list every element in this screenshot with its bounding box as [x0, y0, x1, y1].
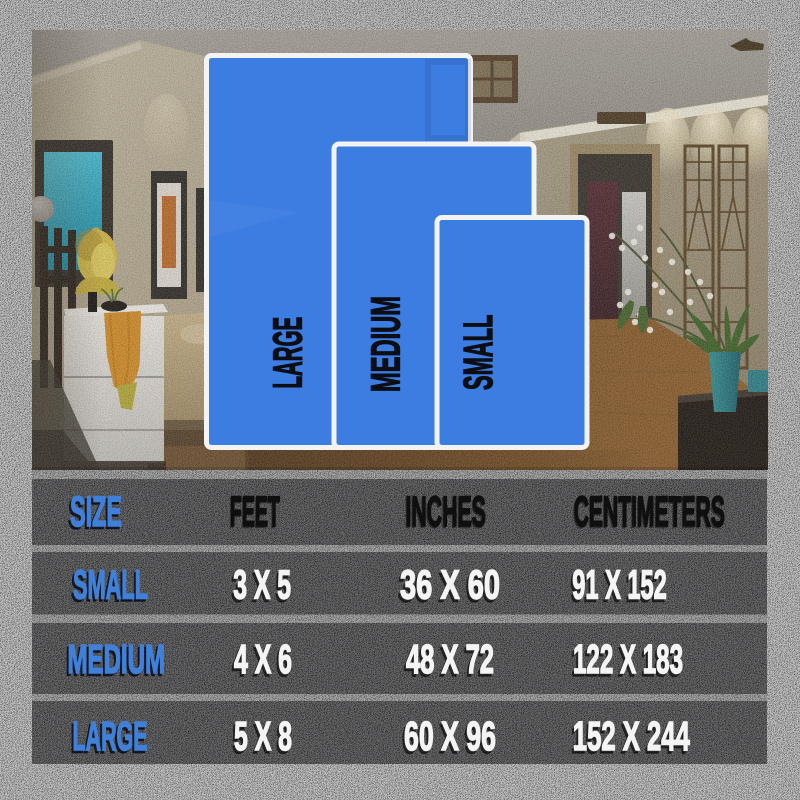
svg-text:152 X 244: 152 X 244	[573, 713, 690, 759]
svg-text:91 X 152: 91 X 152	[572, 562, 667, 608]
svg-text:INCHES: INCHES	[406, 489, 487, 536]
svg-text:SMALL: SMALL	[455, 315, 501, 390]
svg-text:SMALL: SMALL	[73, 562, 148, 608]
svg-text:CENTIMETERS: CENTIMETERS	[574, 489, 725, 536]
svg-text:122 X 183: 122 X 183	[573, 636, 683, 682]
svg-text:LARGE: LARGE	[73, 713, 148, 759]
svg-text:4 X 6: 4 X 6	[234, 636, 292, 682]
svg-text:FEET: FEET	[230, 489, 280, 536]
svg-text:SIZE: SIZE	[70, 489, 122, 536]
svg-text:48 X 72: 48 X 72	[406, 636, 494, 682]
svg-text:LARGE: LARGE	[265, 317, 311, 389]
svg-text:3 X 5: 3 X 5	[233, 562, 291, 608]
svg-text:36 X 60: 36 X 60	[400, 562, 500, 608]
svg-text:60 X 96: 60 X 96	[404, 713, 496, 759]
svg-text:5 X 8: 5 X 8	[234, 713, 292, 759]
svg-text:MEDIUM: MEDIUM	[363, 296, 409, 392]
svg-text:MEDIUM: MEDIUM	[68, 636, 166, 682]
